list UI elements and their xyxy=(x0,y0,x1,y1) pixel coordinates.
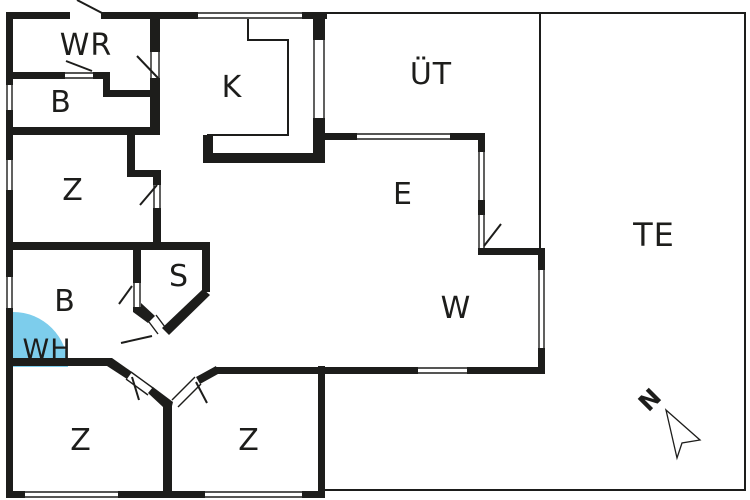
wall-segment xyxy=(6,127,160,135)
wall-segment xyxy=(203,153,325,163)
door-leaf xyxy=(77,0,102,13)
room-label-e: E xyxy=(393,177,413,212)
room-label-s: S xyxy=(169,259,189,294)
room-label-w: W xyxy=(441,291,472,326)
kitchen-counter xyxy=(207,19,288,135)
door-jamb xyxy=(149,322,158,334)
wall-segment xyxy=(478,248,545,255)
compass-north-label: N xyxy=(633,383,667,417)
door-jamb xyxy=(156,315,165,327)
door-leaf xyxy=(119,286,132,304)
wall-segment xyxy=(6,12,13,498)
door-gap xyxy=(70,12,101,19)
floor-plan-drawing: WR B K ÜT E Z S B WH W TE Z Z N xyxy=(0,0,750,500)
wall-segment-angled xyxy=(148,387,173,410)
wall-segment xyxy=(202,250,210,292)
room-label-b-upper: B xyxy=(50,85,72,120)
door-leaf xyxy=(121,336,152,343)
room-label-wh: WH xyxy=(23,334,72,365)
wall-segment xyxy=(6,72,110,79)
room-label-z-bottom-right: Z xyxy=(238,423,260,458)
room-label-b-lower: B xyxy=(54,284,76,319)
wall-segment xyxy=(203,135,213,163)
room-label-te: TE xyxy=(632,216,675,254)
north-arrow-icon xyxy=(666,410,700,458)
room-label-z-bottom-left: Z xyxy=(70,423,92,458)
room-label-z-left: Z xyxy=(62,173,84,208)
wall-segment-angled xyxy=(162,289,210,335)
window xyxy=(313,40,325,118)
door-leaf xyxy=(484,224,501,246)
wall-segment xyxy=(318,366,325,498)
wall-segment xyxy=(103,90,157,97)
wall-segment xyxy=(214,367,545,374)
wall-segment-angled xyxy=(107,358,132,379)
room-label-k: K xyxy=(222,70,243,105)
door-jamb xyxy=(172,377,195,400)
wall-segment-angled xyxy=(196,366,218,384)
floor-plan-page: WR B K ÜT E Z S B WH W TE Z Z N xyxy=(0,0,750,500)
room-label-uet: ÜT xyxy=(410,56,452,92)
wall-segment xyxy=(153,170,161,247)
wall-segment xyxy=(133,250,141,283)
wall-segment xyxy=(6,242,210,250)
door-jamb xyxy=(178,384,201,407)
wall-segment xyxy=(163,403,172,498)
room-label-wr: WR xyxy=(60,28,113,63)
compass: N xyxy=(633,383,700,458)
door-leaf xyxy=(196,382,207,403)
